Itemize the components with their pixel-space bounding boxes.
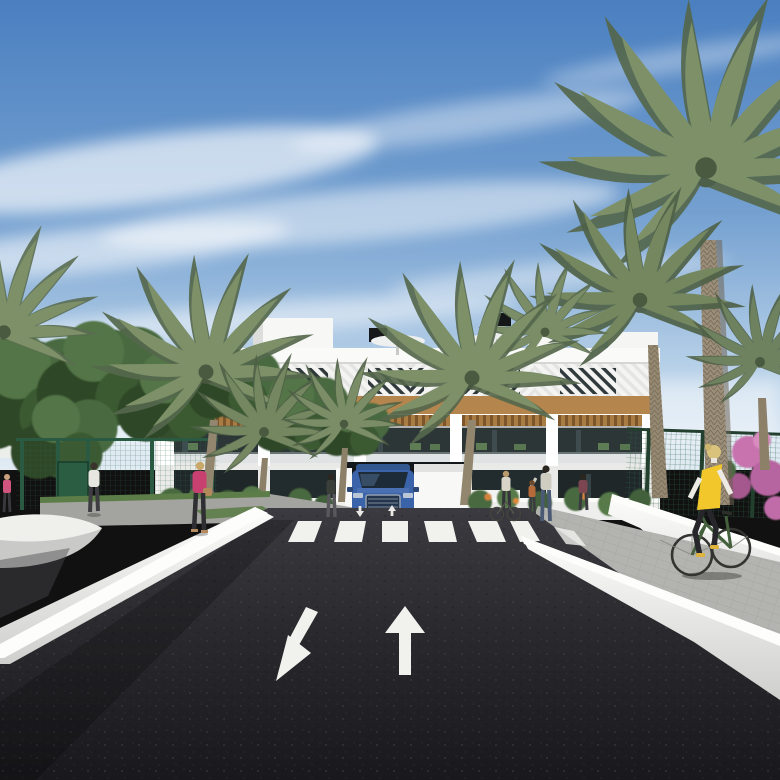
balcony-floor <box>158 414 660 468</box>
pedestrian-far-left <box>3 474 11 512</box>
render-image <box>0 0 780 780</box>
